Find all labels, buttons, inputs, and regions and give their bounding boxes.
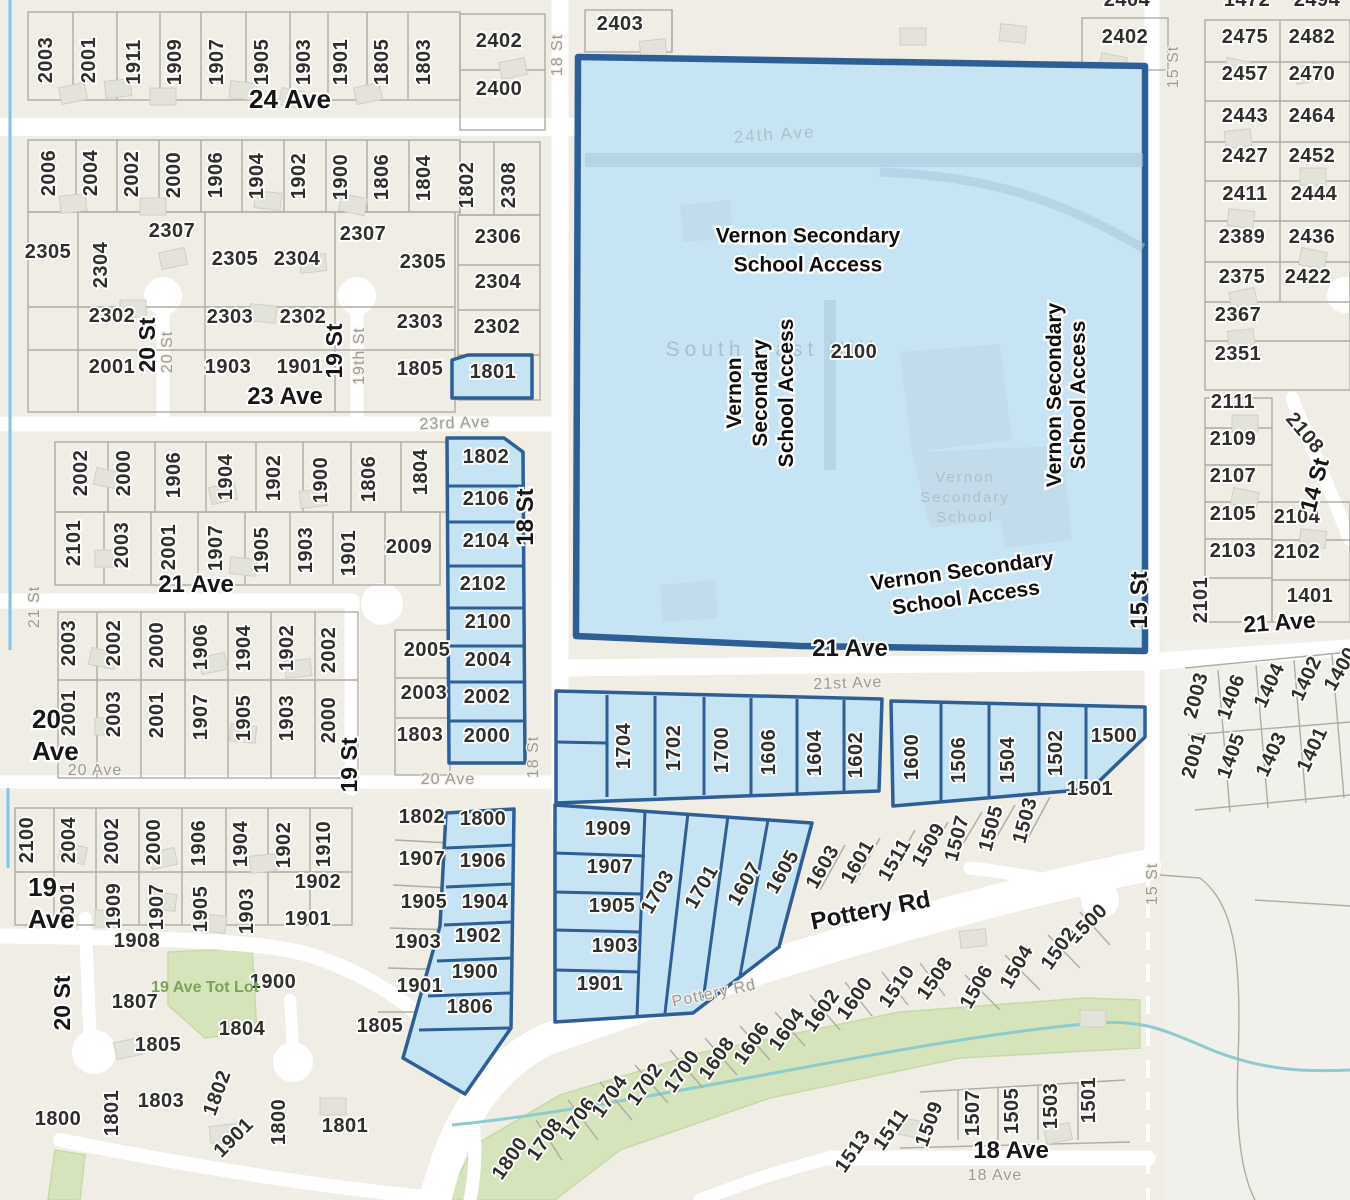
lot-label: 2367 [1215, 304, 1262, 326]
lot-label: 2308 [498, 162, 520, 209]
lot-label: 2000 [146, 622, 168, 669]
lot-label: 1500 [1091, 725, 1138, 747]
lot-label: 2403 [597, 13, 644, 35]
lot-label: 2001 [78, 37, 100, 84]
lot-label: 2452 [1289, 145, 1336, 167]
cul-de-sac [338, 277, 376, 315]
lot-label: 2303 [397, 311, 444, 333]
lot-label: 1906 [163, 452, 185, 499]
lot-label: 1903 [295, 527, 317, 574]
building-footprint [249, 304, 277, 324]
lot-label: 1801 [470, 361, 517, 383]
lot-label: 1801 [101, 1090, 123, 1137]
lot-label: 2004 [80, 149, 102, 196]
building-footprint [140, 198, 166, 215]
svg-text:Vernon Secondary: Vernon Secondary [716, 225, 901, 248]
street-label: 21 Ave [158, 571, 234, 598]
lot-label: 1909 [164, 39, 186, 86]
lot-label: 1905 [589, 895, 636, 917]
lot-label: 2402 [1102, 26, 1149, 48]
lot-label: 1806 [358, 456, 380, 503]
lot-label: 2106 [463, 488, 510, 510]
lot-label: 1908 [114, 930, 161, 952]
lot-label: 1502 [1045, 730, 1067, 777]
lot-label: 1803 [138, 1090, 185, 1112]
lot-label: 1501 [1067, 778, 1114, 800]
lot-label: 1904 [230, 820, 252, 867]
lot-label: 2003 [58, 620, 80, 667]
street-label: 24 Ave [249, 84, 331, 114]
lot-label: 2464 [1289, 105, 1336, 127]
building-footprint [1080, 1010, 1106, 1027]
park-area [48, 1150, 85, 1200]
lot-label: 2302 [89, 305, 136, 327]
lot-label: 1906 [190, 624, 212, 671]
lot-label: 2102 [1274, 541, 1321, 563]
lot-label: 1901 [577, 973, 624, 995]
lot-label: 2109 [1210, 428, 1257, 450]
lot-label: 1906 [460, 850, 507, 872]
lot-label: 2427 [1222, 145, 1269, 167]
lot-label: 1901 [285, 908, 332, 930]
lot-label: 1803 [413, 39, 435, 86]
lot-label: 1800 [268, 1099, 290, 1146]
street-label: 23 Ave [247, 383, 323, 410]
lot-label: 1901 [397, 975, 444, 997]
lot-label: 1804 [219, 1018, 266, 1040]
lot-label: 1506 [948, 737, 970, 784]
lot-label: 2404 [1104, 0, 1151, 11]
lot-label: 1805 [371, 39, 393, 86]
lot-label: 2482 [1289, 26, 1336, 48]
lot-label: 2303 [207, 306, 254, 328]
lot-label: 1905 [233, 695, 255, 742]
street-label-faint: 21 St [26, 586, 43, 628]
street-label-faint: 15 St [1165, 46, 1182, 88]
lot-label: 2001 [89, 356, 136, 378]
building-footprint [900, 28, 926, 45]
lot-label: 1909 [585, 818, 632, 840]
park-label: 19 Ave Tot Lot [151, 979, 260, 996]
svg-text:Secondary: Secondary [749, 339, 772, 447]
svg-text:School Access: School Access [775, 319, 798, 468]
lot-label: 1805 [357, 1015, 404, 1037]
svg-text:Vernon: Vernon [723, 357, 746, 428]
lot-label: 1507 [962, 1090, 984, 1137]
ghost-street-label: Secondary [920, 489, 1010, 506]
lot-label: 2003 [111, 522, 133, 569]
highlighted-parcel-line [555, 970, 639, 972]
lot-label: 1903 [236, 888, 258, 935]
lot-label: 1804 [410, 448, 432, 495]
lot-label: 1472 [1224, 0, 1271, 11]
street-label-faint: 21st Ave [813, 674, 883, 693]
lot-label: 2305 [212, 248, 259, 270]
lot-label: 2100 [465, 611, 512, 633]
lot-label: 2470 [1289, 63, 1336, 85]
lot-label: 1801 [322, 1115, 369, 1137]
street-label-faint: 20 Ave [421, 771, 476, 788]
lot-label: 2457 [1222, 63, 1269, 85]
lot-label: 1907 [190, 694, 212, 741]
lot-label: 2475 [1222, 26, 1269, 48]
lot-label: 1606 [758, 729, 780, 776]
lot-label: 2001 [146, 692, 168, 739]
school-building [660, 580, 718, 622]
lot-label: 2104 [463, 530, 510, 552]
lot-label: 2304 [90, 241, 112, 288]
lot-label: 2305 [25, 241, 72, 263]
lot-label: 1802 [399, 806, 446, 828]
school-access-label: Vernon SecondarySchool Access [1043, 302, 1090, 487]
highlighted-parcel-line [419, 1028, 509, 1030]
street-label: 20 St [134, 317, 160, 372]
lot-label: 2351 [1215, 343, 1262, 365]
lot-label: 1806 [447, 996, 494, 1018]
svg-text:Vernon Secondary: Vernon Secondary [1043, 302, 1066, 487]
ghost-street-label: School [936, 509, 994, 526]
lot-label: 2000 [318, 697, 340, 744]
lot-label: 1401 [1287, 585, 1334, 607]
street-label: 18 Ave [973, 1137, 1049, 1164]
street-label: 21 Ave [812, 635, 888, 662]
lot-label: 1800 [460, 808, 507, 830]
lot-label: 1805 [397, 358, 444, 380]
lot-label: 1702 [663, 725, 685, 772]
building-footprint [320, 1098, 346, 1115]
lot-label: 2305 [400, 251, 447, 273]
lot-label: 1907 [146, 884, 168, 931]
lot-label: 1901 [330, 39, 352, 86]
lot-label: 1902 [263, 455, 285, 502]
lot-label: 2000 [143, 819, 165, 866]
lot-label: 1906 [205, 152, 227, 199]
lot-label: 2002 [318, 627, 340, 674]
street-label: 20 [32, 704, 61, 734]
lot-label: 1602 [845, 732, 867, 779]
lot-label: 2004 [58, 816, 80, 863]
lot-label: 1903 [395, 931, 442, 953]
street-label-faint: 15 St [1144, 863, 1161, 905]
cul-de-sac [144, 277, 182, 315]
street-label: 15 St [1126, 571, 1153, 628]
lot-label: 1905 [190, 886, 212, 933]
lot-label: 1906 [188, 820, 210, 867]
lot-label: 2494 [1294, 0, 1341, 11]
lot-label: 2302 [280, 306, 327, 328]
lot-label: 1903 [592, 935, 639, 957]
lot-label: 2103 [1210, 540, 1257, 562]
street-label: Ave [28, 904, 75, 934]
lot-label: 1901 [277, 356, 324, 378]
street-label-faint: 23rd Ave [419, 414, 490, 433]
street-label: 19 [28, 872, 57, 902]
lot-label: 1900 [310, 457, 332, 504]
street-label: Ave [32, 736, 79, 766]
lot-label: 2443 [1222, 105, 1269, 127]
street-label-faint: 20 St [159, 331, 176, 373]
lot-label: 1904 [246, 152, 268, 199]
map-canvas[interactable]: Vernon Secondary School Access parcel ma… [0, 0, 1350, 1200]
building-footprint [999, 24, 1027, 44]
lot-label: 1805 [135, 1034, 182, 1056]
lot-label: 2006 [38, 150, 60, 197]
lot-label: 2101 [1190, 577, 1212, 624]
svg-text:School Access: School Access [1067, 321, 1090, 470]
lot-label: 2107 [1210, 465, 1257, 487]
street-label: 18 St [512, 488, 539, 545]
street-label: 19 St [321, 323, 347, 378]
cul-de-sac [72, 1030, 116, 1074]
street-label-faint: 18 Ave [968, 1167, 1023, 1184]
lot-label: 2102 [460, 573, 507, 595]
lot-label: 2422 [1285, 266, 1332, 288]
lot-label: 1903 [293, 39, 315, 86]
lot-label: 2400 [476, 78, 523, 100]
lot-label: 2002 [464, 686, 511, 708]
lot-label: 1503 [1040, 1083, 1062, 1130]
lot-label: 2105 [1210, 503, 1257, 525]
lot-label: 1804 [413, 154, 435, 201]
lot-label: 1902 [288, 153, 310, 200]
lot-label: 1909 [103, 883, 125, 930]
lot-label: 1900 [330, 154, 352, 201]
lot-label: 2111 [1211, 391, 1255, 413]
lot-label: 2389 [1219, 226, 1266, 248]
cul-de-sac [361, 583, 403, 625]
svg-text:School Access: School Access [734, 254, 883, 277]
lot-label: 2444 [1291, 183, 1338, 205]
lot-label: 1902 [455, 925, 502, 947]
ghost-street-label: Vernon [935, 469, 995, 486]
road [290, 1000, 293, 1048]
lot-label: 2304 [274, 248, 321, 270]
lot-label: 2304 [475, 271, 522, 293]
lot-label: 1803 [397, 724, 444, 746]
lot-label: 2100 [16, 817, 38, 864]
lot-label: 1904 [233, 624, 255, 671]
lot-label: 2001 [158, 524, 180, 571]
street-label: 20 St [49, 975, 75, 1030]
lot-label: 1907 [399, 848, 446, 870]
lot-label: 1905 [401, 891, 448, 913]
lot-label: 1900 [452, 961, 499, 983]
lot-label: 1800 [35, 1108, 82, 1130]
building-footprint [959, 929, 987, 949]
lot-label: 2002 [103, 620, 125, 667]
lot-label: 2002 [121, 151, 143, 198]
lot-label: 1905 [251, 39, 273, 86]
lot-label: 1907 [206, 39, 228, 86]
lot-label: 1704 [613, 722, 635, 769]
lot-label: 2436 [1289, 226, 1336, 248]
lot-label: 2000 [113, 450, 135, 497]
lot-label: 1907 [587, 856, 634, 878]
lot-label: 2100 [831, 341, 878, 363]
lot-label: 1902 [276, 625, 298, 672]
building-footprint [150, 88, 176, 105]
lot-label: 1504 [997, 736, 1019, 783]
lot-label: 1802 [463, 446, 510, 468]
parcel-map[interactable]: South East HillVernonSecondarySchool24th… [0, 0, 1350, 1200]
lot-label: 2101 [63, 520, 85, 567]
school-building [900, 344, 1012, 452]
lot-label: 2307 [340, 223, 387, 245]
lot-label: 1501 [1078, 1077, 1100, 1124]
street-label: 19 St [336, 737, 362, 792]
lot-label: 1700 [711, 727, 733, 774]
lot-label: 1802 [456, 162, 478, 209]
street-label-faint: 19th St [351, 327, 368, 385]
lot-label: 2001 [58, 690, 80, 737]
road [85, 918, 90, 1032]
lot-label: 2375 [1219, 266, 1266, 288]
lot-label: 1905 [251, 527, 273, 574]
lot-label: 2000 [163, 152, 185, 199]
lot-label: 1901 [338, 530, 360, 577]
lot-label: 2002 [101, 818, 123, 865]
lot-label: 1910 [313, 821, 335, 868]
lot-label: 1902 [295, 871, 342, 893]
lot-label: 1903 [276, 695, 298, 742]
lot-label: 2003 [401, 682, 448, 704]
street-label-faint: 18 St [549, 34, 566, 76]
street-label: 21 Ave [1242, 607, 1316, 638]
lot-label: 1806 [371, 154, 393, 201]
lot-label: 2004 [465, 649, 512, 671]
lot-label: 2411 [1222, 183, 1267, 205]
lot-label: 1904 [462, 891, 509, 913]
lot-label: 1604 [804, 729, 826, 776]
highlighted-parcel-line [556, 742, 607, 743]
lot-label: 2009 [386, 536, 433, 558]
highlighted-parcel-line [555, 930, 641, 932]
lot-label: 2005 [404, 639, 451, 661]
lot-label: 1904 [215, 453, 237, 500]
lot-label: 2402 [476, 30, 523, 52]
lot-label: 1911 [123, 39, 145, 84]
lot-label: 1903 [205, 356, 252, 378]
lot-label: 2302 [474, 316, 521, 338]
lot-label: 1907 [205, 525, 227, 572]
highlighted-parcel-line [555, 892, 643, 894]
lot-label: 1505 [1001, 1088, 1023, 1135]
lot-label: 2003 [35, 37, 57, 84]
street-label-faint: 18 St [525, 736, 542, 778]
lot-label: 2003 [103, 691, 125, 738]
cul-de-sac [273, 1042, 313, 1082]
lot-label: 2000 [464, 725, 511, 747]
lot-label: 2307 [149, 220, 196, 242]
lot-label: 1902 [273, 822, 295, 869]
lot-label: 2306 [475, 226, 522, 248]
lot-label: 2002 [70, 450, 92, 497]
lot-label: 1600 [901, 734, 923, 781]
